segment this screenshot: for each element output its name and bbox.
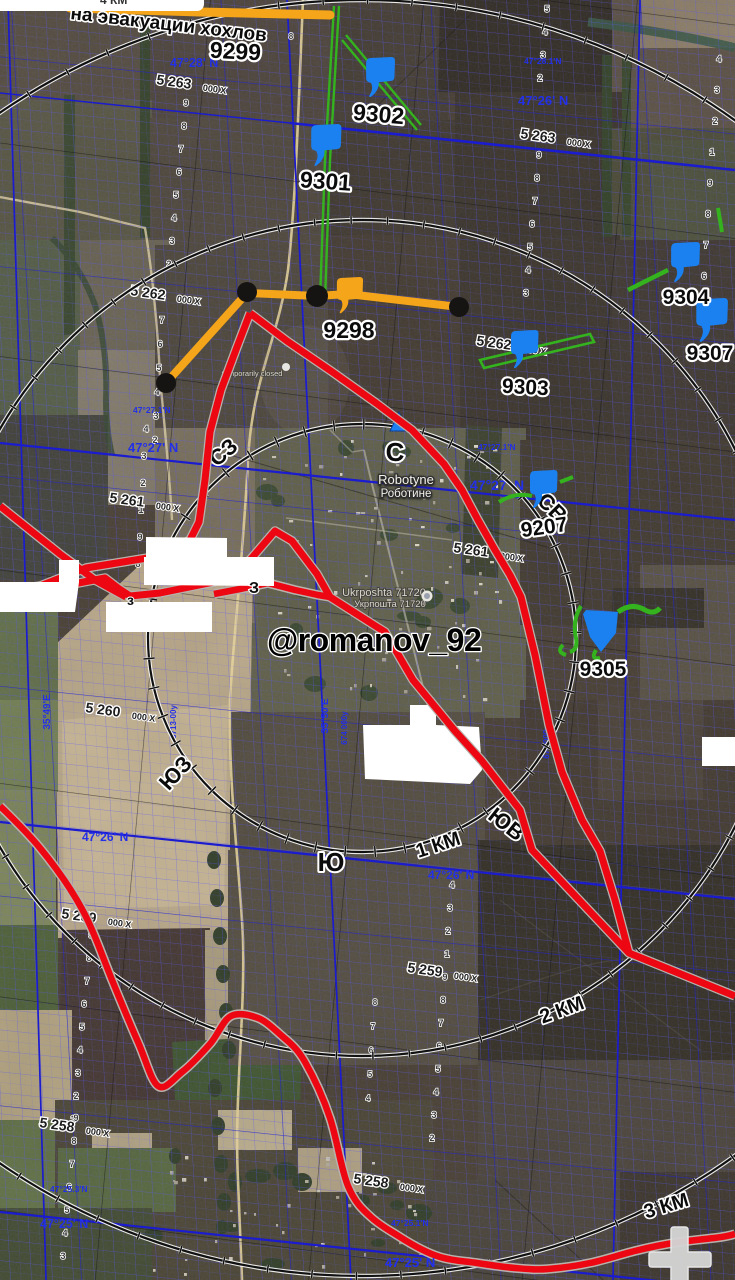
svg-text:6: 6 <box>157 339 162 349</box>
svg-text:3: 3 <box>75 1068 80 1078</box>
svg-text:9301: 9301 <box>299 166 352 196</box>
svg-text:4 КМ: 4 КМ <box>100 0 127 7</box>
svg-text:35°50'E: 35°50'E <box>320 698 331 734</box>
svg-text:3: 3 <box>60 1251 65 1261</box>
svg-text:7: 7 <box>438 1018 443 1028</box>
svg-text:7: 7 <box>159 315 164 325</box>
svg-text:4: 4 <box>143 424 148 434</box>
svg-text:7: 7 <box>69 1159 74 1169</box>
svg-text:9: 9 <box>137 532 142 542</box>
svg-text:3: 3 <box>714 85 719 95</box>
svg-text:Роботине: Роботине <box>381 488 432 500</box>
svg-text:Robotyne: Robotyne <box>378 472 434 487</box>
svg-text:47°26' N: 47°26' N <box>518 93 568 108</box>
svg-text:47°27' N: 47°27' N <box>128 440 178 455</box>
svg-text:2: 2 <box>712 116 717 126</box>
svg-text:4: 4 <box>525 265 530 275</box>
svg-text:674 000у: 674 000у <box>340 711 349 745</box>
svg-text:9298: 9298 <box>323 317 374 343</box>
svg-text:5: 5 <box>173 190 178 200</box>
svg-text:5: 5 <box>79 1022 84 1032</box>
svg-text:8: 8 <box>373 998 378 1007</box>
svg-text:9305: 9305 <box>580 658 627 681</box>
svg-text:3: 3 <box>447 903 452 913</box>
svg-text:5: 5 <box>544 4 549 14</box>
svg-text:3: 3 <box>169 236 174 246</box>
svg-text:С: С <box>386 437 405 467</box>
svg-text:7: 7 <box>371 1022 376 1031</box>
svg-text:9: 9 <box>442 972 447 982</box>
svg-text:7: 7 <box>84 976 89 986</box>
svg-text:47°25' N: 47°25' N <box>40 1217 88 1231</box>
svg-text:4: 4 <box>433 1087 438 1097</box>
svg-text:47°28.1'N: 47°28.1'N <box>524 56 562 66</box>
svg-text:6: 6 <box>529 219 534 229</box>
svg-text:35°49'E: 35°49'E <box>42 694 53 730</box>
svg-text:3: 3 <box>431 1110 436 1120</box>
svg-text:4: 4 <box>716 54 721 64</box>
svg-text:2: 2 <box>73 1091 78 1101</box>
svg-text:47°26' N: 47°26' N <box>82 830 128 844</box>
svg-text:9: 9 <box>707 178 712 188</box>
svg-text:47°25.3'N: 47°25.3'N <box>50 1184 88 1194</box>
svg-text:З: З <box>249 580 259 597</box>
svg-text:4: 4 <box>366 1094 371 1103</box>
svg-text:8: 8 <box>534 173 539 183</box>
svg-text:6: 6 <box>176 167 181 177</box>
svg-text:9307: 9307 <box>687 342 734 365</box>
svg-text:2: 2 <box>429 1133 434 1143</box>
svg-text:7: 7 <box>178 144 183 154</box>
svg-text:47°27.1'N: 47°27.1'N <box>133 405 171 415</box>
svg-text:7: 7 <box>532 196 537 206</box>
svg-text:2: 2 <box>445 926 450 936</box>
svg-text:47°25' N: 47°25' N <box>385 1255 435 1270</box>
svg-text:Укрпошта 71720: Укрпошта 71720 <box>354 599 426 610</box>
svg-text:Ukrposhta 71720: Ukrposhta 71720 <box>342 587 426 599</box>
svg-text:47°26' N: 47°26' N <box>428 868 474 882</box>
svg-text:@romanov_92: @romanov_92 <box>267 622 481 658</box>
svg-text:4: 4 <box>77 1045 82 1055</box>
svg-text:47°25.1'N: 47°25.1'N <box>391 1218 429 1228</box>
svg-text:2: 2 <box>537 73 542 83</box>
svg-text:47°27.1'N: 47°27.1'N <box>478 442 516 452</box>
svg-text:5: 5 <box>156 363 161 373</box>
svg-text:7: 7 <box>703 240 708 250</box>
svg-text:8: 8 <box>440 995 445 1005</box>
svg-text:9: 9 <box>183 98 188 108</box>
svg-text:8: 8 <box>289 32 294 41</box>
svg-text:8: 8 <box>705 209 710 219</box>
svg-text:з: з <box>127 592 134 608</box>
svg-text:2: 2 <box>140 478 145 488</box>
svg-text:9: 9 <box>536 150 541 160</box>
svg-text:5: 5 <box>435 1064 440 1074</box>
svg-text:9304: 9304 <box>663 286 710 309</box>
svg-text:8: 8 <box>71 1136 76 1146</box>
svg-text:5: 5 <box>368 1070 373 1079</box>
svg-text:Ю: Ю <box>318 847 345 877</box>
svg-text:1: 1 <box>709 147 714 157</box>
svg-text:3: 3 <box>523 288 528 298</box>
svg-text:1: 1 <box>444 949 449 959</box>
svg-text:8: 8 <box>181 121 186 131</box>
svg-text:5: 5 <box>527 242 532 252</box>
svg-text:9303: 9303 <box>501 375 549 400</box>
svg-text:6: 6 <box>81 999 86 1009</box>
svg-text:9302: 9302 <box>352 99 405 129</box>
svg-text:6: 6 <box>701 271 706 281</box>
svg-text:4: 4 <box>171 213 176 223</box>
